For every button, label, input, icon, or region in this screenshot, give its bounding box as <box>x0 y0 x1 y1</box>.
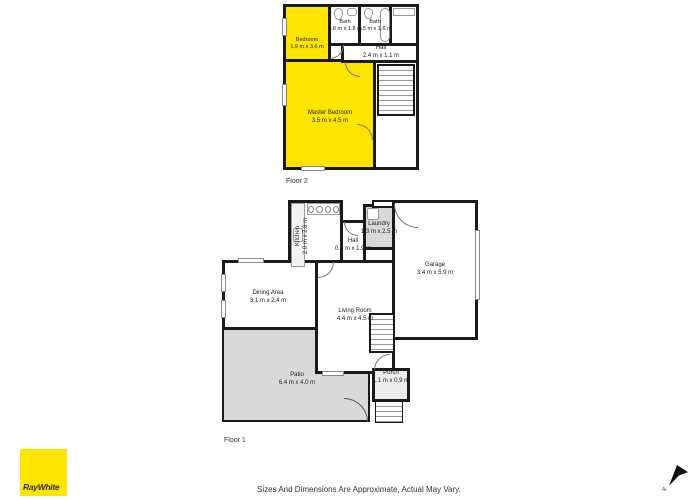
window-icon <box>282 84 287 106</box>
room-label-garage: Garage 3.4 m x 5.9 m <box>405 262 465 277</box>
floor-1-plan: Kitchen 2.0 m x 2.8 m Hall 0.9 m x 1.9 m… <box>222 200 480 432</box>
vanity-icon <box>393 8 415 16</box>
staircase-floor2 <box>377 64 415 116</box>
room-label-bedroom: Bedroom 1.9 m x 3.6 m <box>285 37 329 51</box>
north-arrow-label: Ai <box>662 487 666 493</box>
floor-2-caption: Floor 2 <box>286 178 308 185</box>
floor-2-plan: Bedroom 1.9 m x 3.6 m Bath 0.8 m x 1.8 m… <box>283 4 419 170</box>
window-icon <box>221 274 226 292</box>
room-label-dining-area: Dining Area 3.1 m x 2.4 m <box>234 290 302 305</box>
room-label-kitchen: Kitchen 2.0 m x 2.8 m <box>295 206 335 266</box>
sink-icon <box>347 8 357 16</box>
room-label-porch: Porch 1.1 m x 0.9 m <box>364 370 418 385</box>
room-label-living-room: Living Room 4.4 m x 4.5 m <box>320 308 390 323</box>
garage-door-opening <box>475 230 480 300</box>
floor-1-caption: Floor 1 <box>224 437 246 444</box>
raywhite-logo-text: RayWhite <box>23 482 59 492</box>
floorplan-page: Bedroom 1.9 m x 3.6 m Bath 0.8 m x 1.8 m… <box>0 0 700 500</box>
room-label-hall-floor2: Hall 2.4 m x 1.1 m <box>345 45 417 60</box>
room-bedroom <box>283 4 331 62</box>
disclaimer-text: Sizes And Dimensions Are Approximate, Ac… <box>257 485 461 494</box>
window-icon <box>301 166 325 171</box>
raywhite-logo: RayWhite <box>20 449 67 496</box>
washer-icon <box>367 208 379 220</box>
porch-steps <box>375 401 403 423</box>
window-icon <box>221 300 226 318</box>
window-icon <box>238 258 264 263</box>
room-label-bath-2: Bath 1.5 m x 1.6 m <box>355 19 395 33</box>
window-icon <box>282 18 287 36</box>
room-label-patio: Patio 6.4 m x 4.0 m <box>262 372 332 387</box>
room-label-master-bedroom: Master Bedroom 3.5 m x 4.5 m <box>290 110 370 125</box>
room-label-laundry: Laundry 1.3 m x 2.5 m <box>354 221 404 236</box>
north-arrow-icon <box>669 465 688 486</box>
room-label-hall-floor1: Hall 0.9 m x 1.9 m <box>326 238 380 253</box>
